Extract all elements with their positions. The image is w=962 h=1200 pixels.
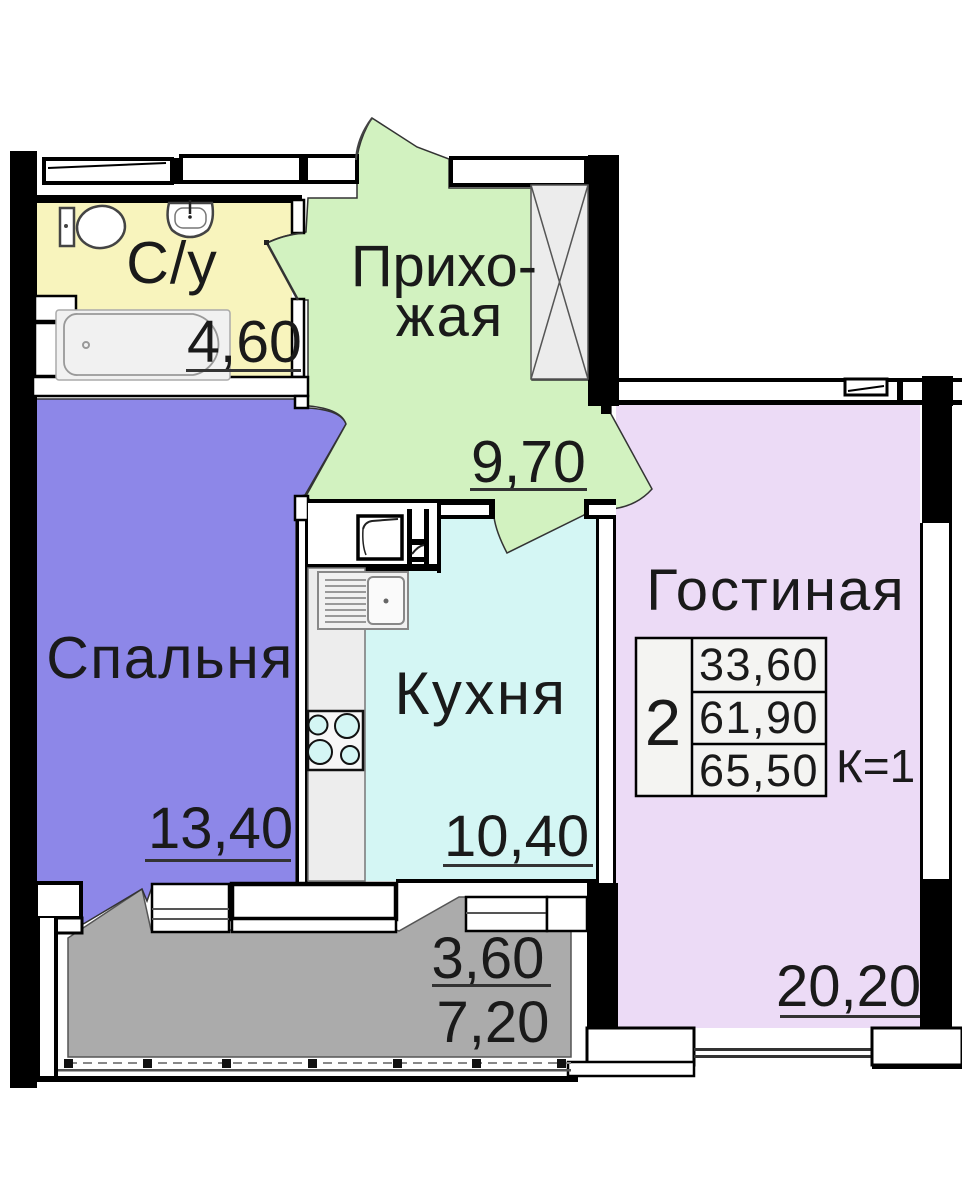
svg-text:Кухня: Кухня: [394, 660, 567, 727]
svg-text:К=1: К=1: [836, 740, 915, 792]
svg-text:9,70: 9,70: [471, 429, 586, 495]
svg-text:Спальня: Спальня: [46, 625, 294, 691]
svg-text:13,40: 13,40: [148, 796, 293, 861]
svg-text:4,60: 4,60: [187, 309, 302, 375]
svg-text:20,20: 20,20: [776, 954, 921, 1019]
svg-text:3,60: 3,60: [432, 926, 545, 991]
svg-text:61,90: 61,90: [699, 692, 819, 743]
svg-text:65,50: 65,50: [699, 745, 819, 796]
svg-text:жая: жая: [396, 284, 504, 349]
svg-text:С/у: С/у: [126, 230, 218, 296]
svg-text:7,20: 7,20: [437, 990, 550, 1055]
svg-text:Гостиная: Гостиная: [646, 558, 905, 623]
svg-text:10,40: 10,40: [444, 804, 589, 869]
svg-text:33,60: 33,60: [699, 639, 819, 690]
svg-text:2: 2: [645, 686, 681, 759]
